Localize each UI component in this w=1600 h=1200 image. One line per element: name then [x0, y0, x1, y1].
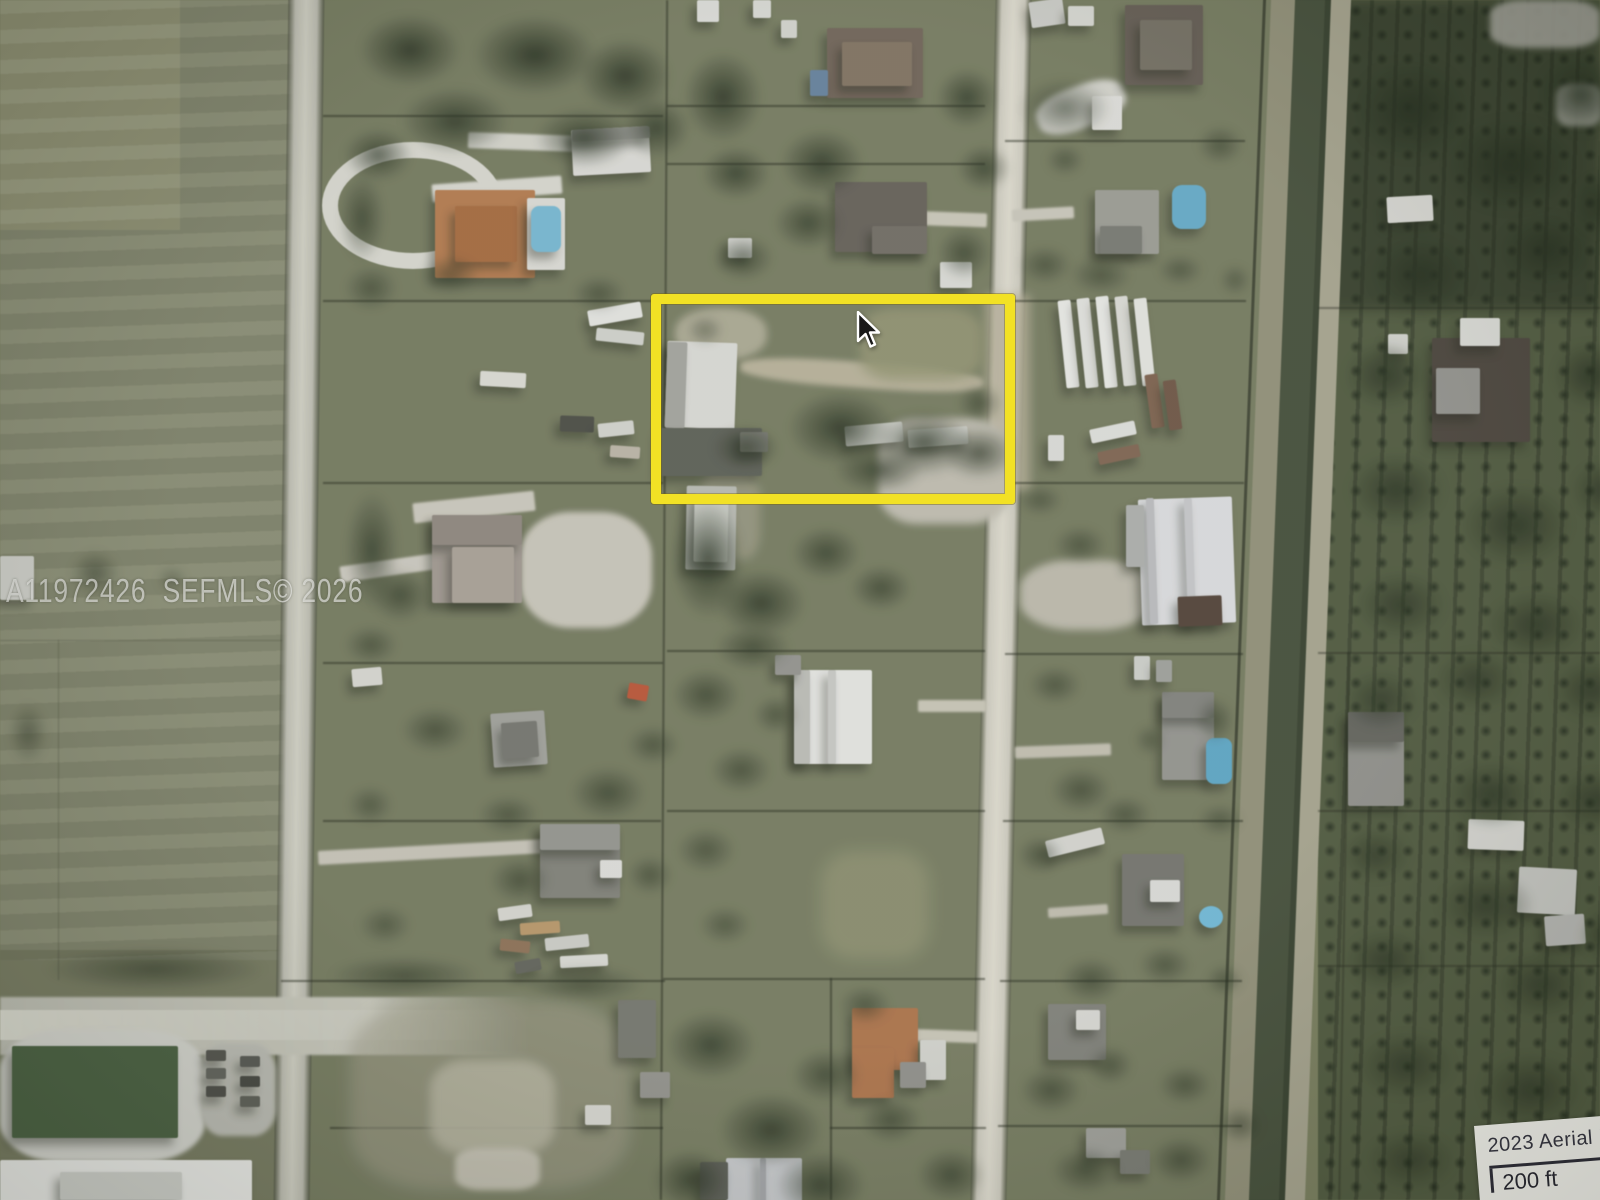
aerial-photo: A11972426 SEFMLS© 2026 2023 Aerial Ph 20…	[0, 0, 1600, 1200]
scale-caption: 2023 Aerial Ph	[1487, 1123, 1600, 1158]
cursor-pointer-icon	[856, 311, 882, 353]
scale-bar: 200 ft	[1489, 1153, 1600, 1198]
parcel-highlight	[651, 294, 1015, 504]
scale-box: 2023 Aerial Ph 200 ft	[1474, 1113, 1600, 1200]
scale-bar-tick	[1489, 1169, 1494, 1193]
scale-label: 200 ft	[1502, 1166, 1559, 1196]
mls-watermark: A11972426 SEFMLS© 2026	[6, 572, 363, 610]
